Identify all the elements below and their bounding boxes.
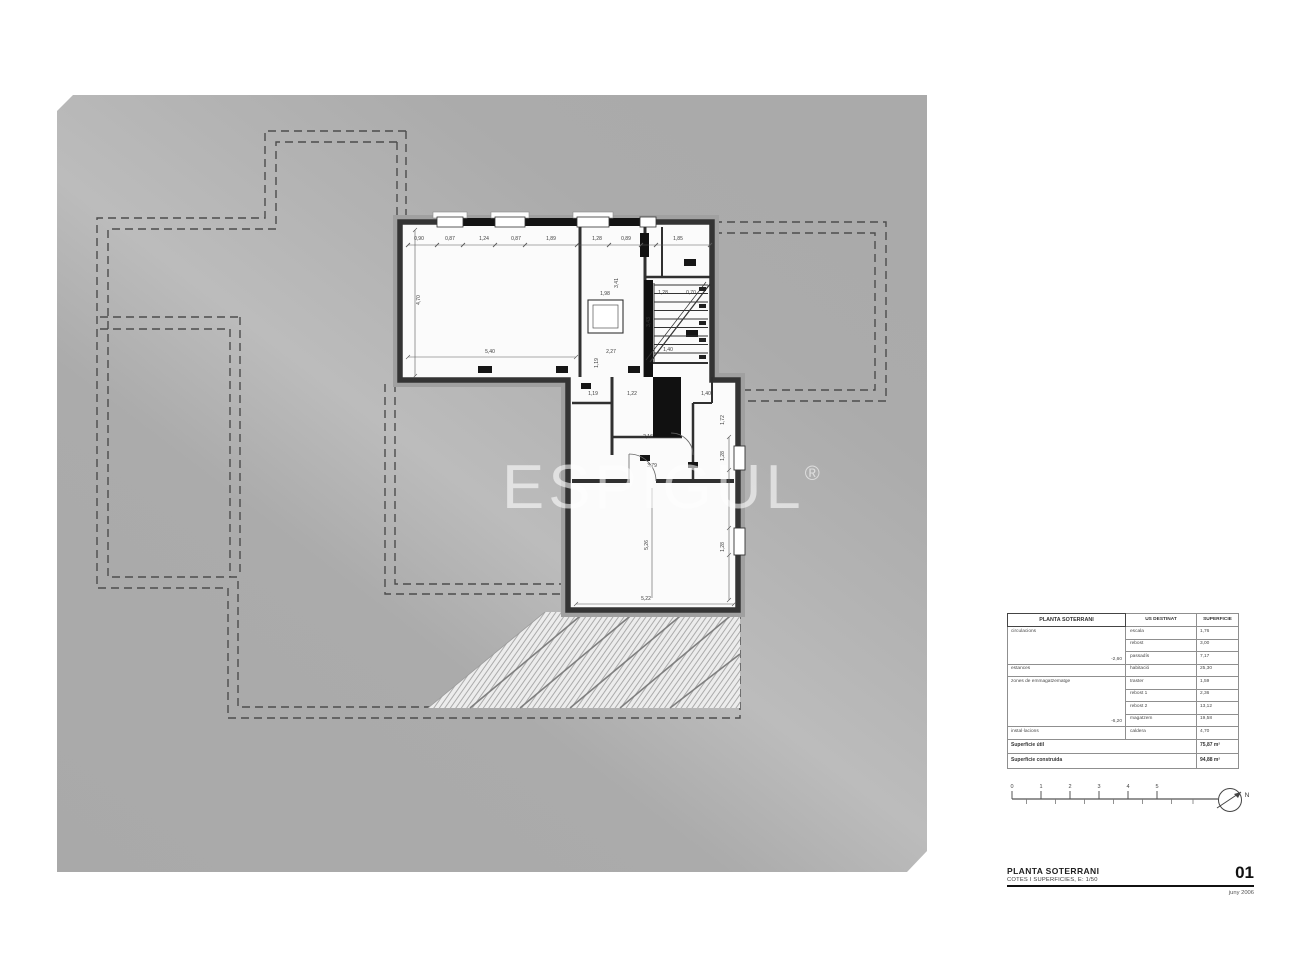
dim-label: 5,26: [644, 540, 650, 550]
table-row: instal·lacionscaldera4,70: [1008, 727, 1239, 740]
zone-cell: estances: [1008, 664, 1126, 677]
zone-cell: instal·lacions: [1008, 727, 1126, 740]
scale-tick-label: 5: [1155, 784, 1158, 790]
area-cell: 19,58: [1197, 714, 1239, 727]
total-row: Superficie construida94,88 m²: [1008, 754, 1239, 769]
dim-label: 1,24: [479, 236, 489, 242]
use-cell: passadís: [1126, 652, 1197, 665]
use-cell: escala: [1126, 627, 1197, 640]
dim-label: 1,28: [658, 290, 668, 296]
dim-label: 1,72: [720, 415, 726, 425]
dim-label: 0,90: [414, 236, 424, 242]
use-cell: rebost: [1126, 639, 1197, 652]
dim-label: 1,22: [627, 391, 637, 397]
scale-tick-label: 0: [1010, 784, 1013, 790]
use-cell: rebost 2: [1126, 702, 1197, 715]
zone-cell: zones de emmagatzematge-6,20: [1008, 677, 1126, 727]
total-value: 94,88 m²: [1197, 754, 1239, 769]
total-row: Superficie útil75,87 m²: [1008, 739, 1239, 754]
dim-label: 0,89: [621, 236, 631, 242]
dim-label: 0,70: [686, 290, 696, 296]
site-ground-area: [57, 95, 927, 872]
use-cell: rebost 1: [1126, 689, 1197, 702]
title-block: 01 PLANTA SOTERRANI COTES I SUPERFICIES,…: [1007, 866, 1254, 896]
zone-elevation-note: -2,60: [1111, 657, 1122, 663]
north-label: N: [1245, 792, 1250, 799]
dim-label: 1,28: [592, 236, 602, 242]
area-cell: 2,36: [1197, 689, 1239, 702]
window: [437, 217, 463, 227]
dim-label: 0,87: [445, 236, 455, 242]
dim-label: 0,87: [511, 236, 521, 242]
dim-label: 1,28: [720, 542, 726, 552]
scale-tick-label: 4: [1126, 784, 1129, 790]
sheet-subtitle: COTES I SUPERFICIES, E: 1/50: [1007, 877, 1254, 883]
dim-label: 3,79: [647, 463, 657, 469]
dim-label: 1,40: [701, 391, 711, 397]
table-header-plan: PLANTA SOTERRANI: [1008, 614, 1126, 627]
area-cell: 25,30: [1197, 664, 1239, 677]
use-cell: magatzem: [1126, 714, 1197, 727]
dim-label: 3,43: [646, 317, 652, 327]
table-row: circulacions-2,60escala1,76: [1008, 627, 1239, 640]
dim-label: 5,40: [485, 349, 495, 355]
dim-label: 5,22: [641, 596, 651, 602]
total-label: Superficie construida: [1008, 754, 1197, 769]
zone-label: estances: [1011, 666, 1125, 672]
window: [577, 217, 609, 227]
floor-plan-svg: 0,900,871,240,871,891,280,891,854,705,40…: [0, 0, 1300, 975]
dim-label: 1,85: [673, 236, 683, 242]
dim-label: 3,41: [614, 278, 620, 288]
sheet-number: 01: [1235, 863, 1254, 883]
dim-label: 4,70: [416, 295, 422, 305]
sheet-title: PLANTA SOTERRANI: [1007, 866, 1254, 876]
area-cell: 1,76: [1197, 627, 1239, 640]
appliance: [588, 300, 623, 333]
title-rule: [1007, 885, 1254, 887]
window: [640, 217, 656, 227]
drawing-sheet-page: 0,900,871,240,871,891,280,891,854,705,40…: [0, 0, 1300, 975]
dim-label: 1,19: [588, 391, 598, 397]
dim-label: 1,89: [546, 236, 556, 242]
dim-label: 1,28: [720, 451, 726, 461]
dim-label: 1,98: [600, 291, 610, 297]
table-row: estanceshabitació25,30: [1008, 664, 1239, 677]
scale-bar: 012345: [1010, 784, 1218, 804]
table-row: zones de emmagatzematge-6,20traster1,59: [1008, 677, 1239, 690]
zone-cell: circulacions-2,60: [1008, 627, 1126, 665]
scale-tick-label: 2: [1068, 784, 1071, 790]
area-cell: 4,70: [1197, 727, 1239, 740]
area-cell: 1,59: [1197, 677, 1239, 690]
zone-label: circulacions: [1011, 629, 1125, 635]
window: [495, 217, 525, 227]
total-label: Superficie útil: [1008, 739, 1197, 754]
area-cell: 7,17: [1197, 652, 1239, 665]
total-value: 75,87 m²: [1197, 739, 1239, 754]
zone-label: instal·lacions: [1011, 729, 1125, 735]
areas-table: PLANTA SOTERRANI US DESTINAT SUPERFICIE …: [1007, 613, 1238, 769]
dim-label: 1,40: [663, 347, 673, 353]
use-cell: habitació: [1126, 664, 1197, 677]
zone-label: zones de emmagatzematge: [1011, 679, 1125, 685]
zone-elevation-note: -6,20: [1111, 719, 1122, 725]
scale-tick-label: 3: [1097, 784, 1100, 790]
area-cell: 13,12: [1197, 702, 1239, 715]
use-cell: caldera: [1126, 727, 1197, 740]
table-header-use: US DESTINAT: [1126, 614, 1197, 627]
sheet-date: juny 2006: [1007, 890, 1254, 896]
table-header-area: SUPERFICIE: [1197, 614, 1239, 627]
dim-label: 2,16: [643, 434, 653, 440]
dim-label: 1,19: [594, 358, 600, 368]
north-arrow: N: [1217, 789, 1250, 812]
use-cell: traster: [1126, 677, 1197, 690]
dim-label: 2,27: [606, 349, 616, 355]
scale-tick-label: 1: [1039, 784, 1042, 790]
area-cell: 3,00: [1197, 639, 1239, 652]
